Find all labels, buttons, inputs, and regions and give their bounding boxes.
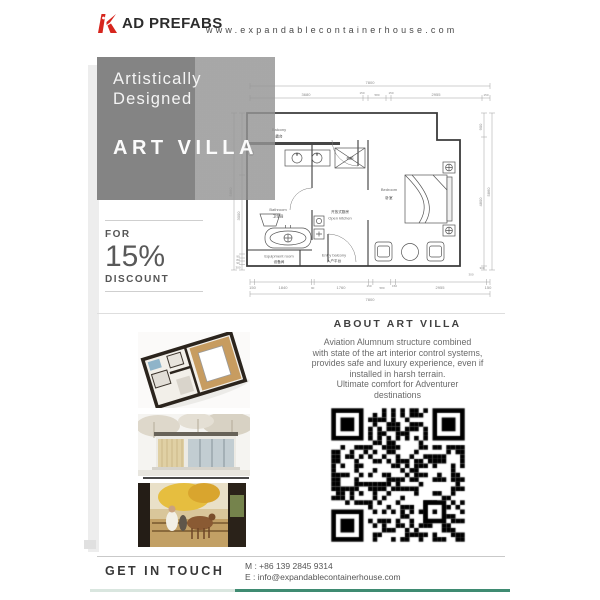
dim: 3680 bbox=[302, 92, 312, 97]
logo-mark-icon bbox=[97, 14, 118, 33]
dim: 150 bbox=[485, 285, 492, 290]
sink-left bbox=[292, 153, 302, 163]
get-in-touch-heading: GET IN TOUCH bbox=[105, 564, 224, 578]
label-bedroom: Bedroom bbox=[381, 187, 398, 192]
bottom-accent-green bbox=[235, 589, 510, 592]
divider bbox=[105, 291, 203, 292]
headboard bbox=[447, 177, 452, 221]
offer-discount-label: DISCOUNT bbox=[105, 274, 203, 285]
dim-bottom-total: 7800 bbox=[366, 297, 376, 302]
dim-right-total: 5860 bbox=[486, 187, 491, 197]
dim: 150 bbox=[388, 91, 393, 95]
image-3d-floorplan bbox=[138, 332, 250, 408]
page-title: ART VILLA bbox=[113, 137, 275, 160]
hero-box: Artistically Designed ART VILLA bbox=[97, 57, 275, 200]
3d-floorplan-render bbox=[138, 332, 250, 408]
dim: 4800 bbox=[478, 197, 483, 207]
brand-logo: AD PREFABS bbox=[97, 14, 223, 33]
qr-code bbox=[327, 404, 469, 546]
dim: 150 bbox=[483, 93, 488, 97]
label-bedroom-cn: 卧室 bbox=[385, 195, 393, 200]
about-line: with state of the art interior control s… bbox=[290, 348, 505, 359]
dim: 300 bbox=[479, 266, 484, 270]
label-entry-cn: 入户平台 bbox=[327, 258, 342, 263]
kitchen-appliance-1 bbox=[314, 216, 324, 226]
offer-for-label: FOR bbox=[105, 229, 203, 240]
label-entry: Entry balcony bbox=[322, 253, 346, 258]
about-line: provides safe and luxury experience, eve… bbox=[290, 358, 505, 369]
offer-percent: 15% bbox=[105, 240, 203, 274]
about-line: Aviation Alumnum structure combined bbox=[290, 337, 505, 348]
dim: 90 bbox=[236, 261, 240, 265]
label-bathroom-cn: 卫生间 bbox=[273, 214, 284, 219]
about-body: Aviation Alumnum structure combined with… bbox=[290, 337, 505, 400]
label-kitchen: Open kitchen bbox=[328, 216, 352, 221]
dim: 580 bbox=[374, 93, 379, 97]
dim: 150 bbox=[366, 284, 371, 288]
sink-right bbox=[312, 153, 322, 163]
image-lifestyle-photo bbox=[138, 483, 246, 547]
dim: 300 bbox=[235, 266, 240, 270]
container-house-exterior-render bbox=[138, 414, 250, 476]
divider bbox=[105, 220, 203, 221]
dim: 1760 bbox=[337, 285, 347, 290]
about-line: Ultimate comfort for Adventurer bbox=[290, 379, 505, 390]
about-line: installed in harsh terrain. bbox=[290, 369, 505, 380]
dim: 150 bbox=[249, 285, 256, 290]
image-shadow-line bbox=[143, 477, 249, 479]
dim: 900 bbox=[478, 123, 483, 130]
dim: 150 bbox=[359, 91, 364, 95]
contact-details: M : +86 139 2845 9314 E : info@expandabl… bbox=[245, 561, 401, 583]
dim: 1840 bbox=[279, 285, 289, 290]
dim: 90 bbox=[311, 286, 315, 290]
round-table bbox=[402, 244, 419, 261]
flyer-page: AD PREFABS www.expandablecontainerhouse.… bbox=[0, 0, 600, 600]
hero-tagline-1: Artistically bbox=[113, 69, 275, 89]
bottom-accent-light bbox=[90, 589, 235, 592]
dim: 300 bbox=[468, 273, 473, 277]
left-accent-strip-cap bbox=[84, 540, 96, 549]
email-link[interactable]: E : info@expandablecontainerhouse.com bbox=[245, 572, 401, 583]
label-equipment-cn: 设备间 bbox=[274, 259, 285, 264]
hero-tagline-2: Designed bbox=[113, 89, 275, 109]
dim: 2955 bbox=[432, 92, 442, 97]
discount-block: FOR 15% DISCOUNT bbox=[105, 220, 203, 292]
dim: 580 bbox=[379, 286, 384, 290]
dim-top-total: 7800 bbox=[366, 80, 376, 85]
label-kitchen-cn: 开放式厨房 bbox=[331, 209, 349, 214]
about-line: destinations bbox=[290, 390, 505, 401]
room-labels: Balcony 露台 Bathroom 卫生间 开放式厨房 Open kitch… bbox=[264, 127, 397, 264]
about-title: ABOUT ART VILLA bbox=[290, 318, 505, 330]
footer-divider bbox=[97, 556, 505, 557]
label-equipment: Equipment room bbox=[264, 254, 294, 259]
dim: 2955 bbox=[436, 285, 446, 290]
dim: 3000 bbox=[236, 211, 241, 221]
label-wardrobe-cn: 衣柜 bbox=[346, 156, 354, 161]
dim: 150 bbox=[392, 284, 397, 288]
outdoor-lifestyle-photo bbox=[138, 483, 246, 547]
label-balcony-cn: 露台 bbox=[275, 134, 283, 139]
image-container-house bbox=[138, 414, 250, 476]
label-bathroom: Bathroom bbox=[269, 207, 287, 212]
section-divider bbox=[97, 313, 505, 314]
website-url[interactable]: www.expandablecontainerhouse.com bbox=[206, 25, 458, 35]
phone-link[interactable]: M : +86 139 2845 9314 bbox=[245, 561, 401, 572]
